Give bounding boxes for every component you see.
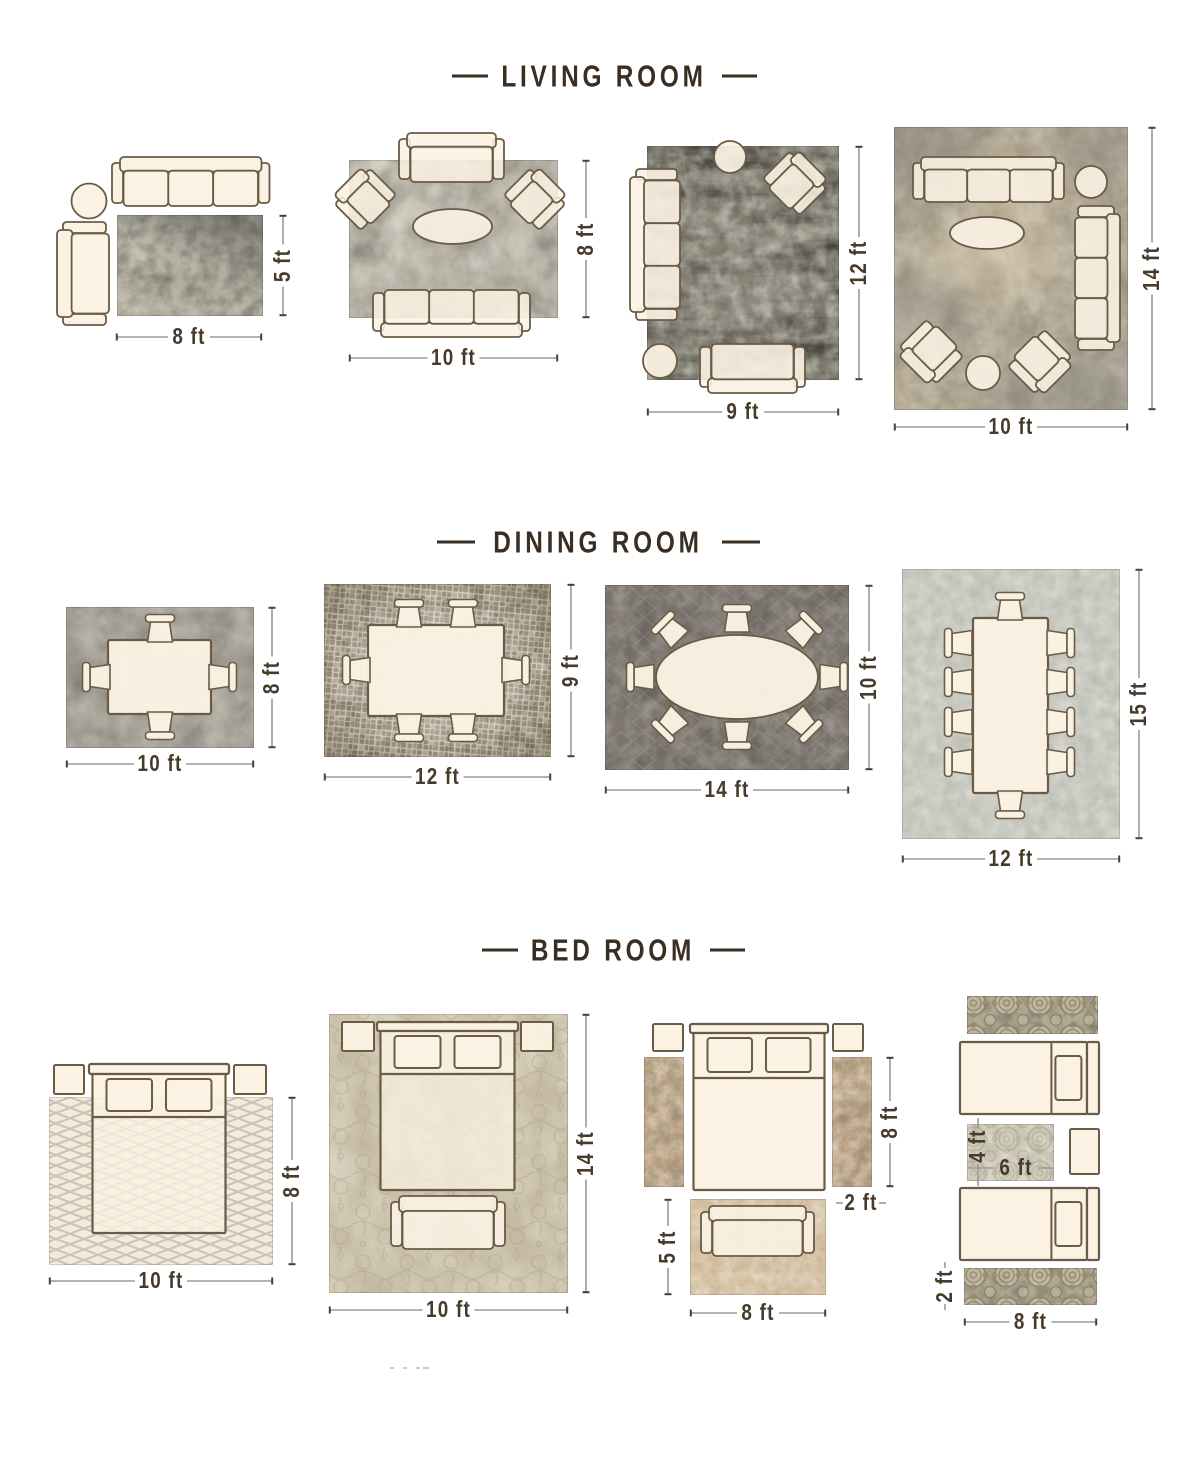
svg-text:12 ft: 12 ft [989,846,1034,871]
svg-text:15 ft: 15 ft [1126,682,1151,727]
svg-text:8 ft: 8 ft [573,222,598,255]
svg-text:10 ft: 10 ft [138,751,183,776]
svg-text:9 ft: 9 ft [726,399,759,424]
svg-text:10 ft: 10 ft [139,1268,184,1293]
svg-text:10 ft: 10 ft [856,655,881,700]
svg-text:8 ft: 8 ft [741,1300,774,1325]
svg-text:9 ft: 9 ft [558,654,583,687]
svg-text:8 ft: 8 ft [259,661,284,694]
svg-text:DINING ROOM: DINING ROOM [493,525,702,559]
svg-text:10 ft: 10 ft [426,1297,471,1322]
svg-text:4 ft: 4 ft [965,1129,990,1162]
svg-text:LIVING ROOM: LIVING ROOM [501,59,706,93]
svg-text:14 ft: 14 ft [705,777,750,802]
svg-text:BED ROOM: BED ROOM [531,933,695,967]
svg-text:8 ft: 8 ft [877,1105,902,1138]
svg-text:12 ft: 12 ft [846,241,871,286]
svg-text:8 ft: 8 ft [1014,1309,1047,1334]
svg-text:8 ft: 8 ft [172,324,205,349]
svg-text:10 ft: 10 ft [989,414,1034,439]
svg-text:8 ft: 8 ft [279,1164,304,1197]
svg-text:2 ft: 2 ft [844,1190,877,1215]
svg-text:14 ft: 14 ft [1139,246,1164,291]
svg-text:14 ft: 14 ft [573,1131,598,1176]
svg-text:6 ft: 6 ft [999,1155,1032,1180]
svg-text:5 ft: 5 ft [270,249,295,282]
svg-text:12 ft: 12 ft [415,764,460,789]
svg-text:5 ft: 5 ft [655,1230,680,1263]
svg-text:10 ft: 10 ft [431,345,476,370]
svg-text:2 ft: 2 ft [932,1269,957,1302]
